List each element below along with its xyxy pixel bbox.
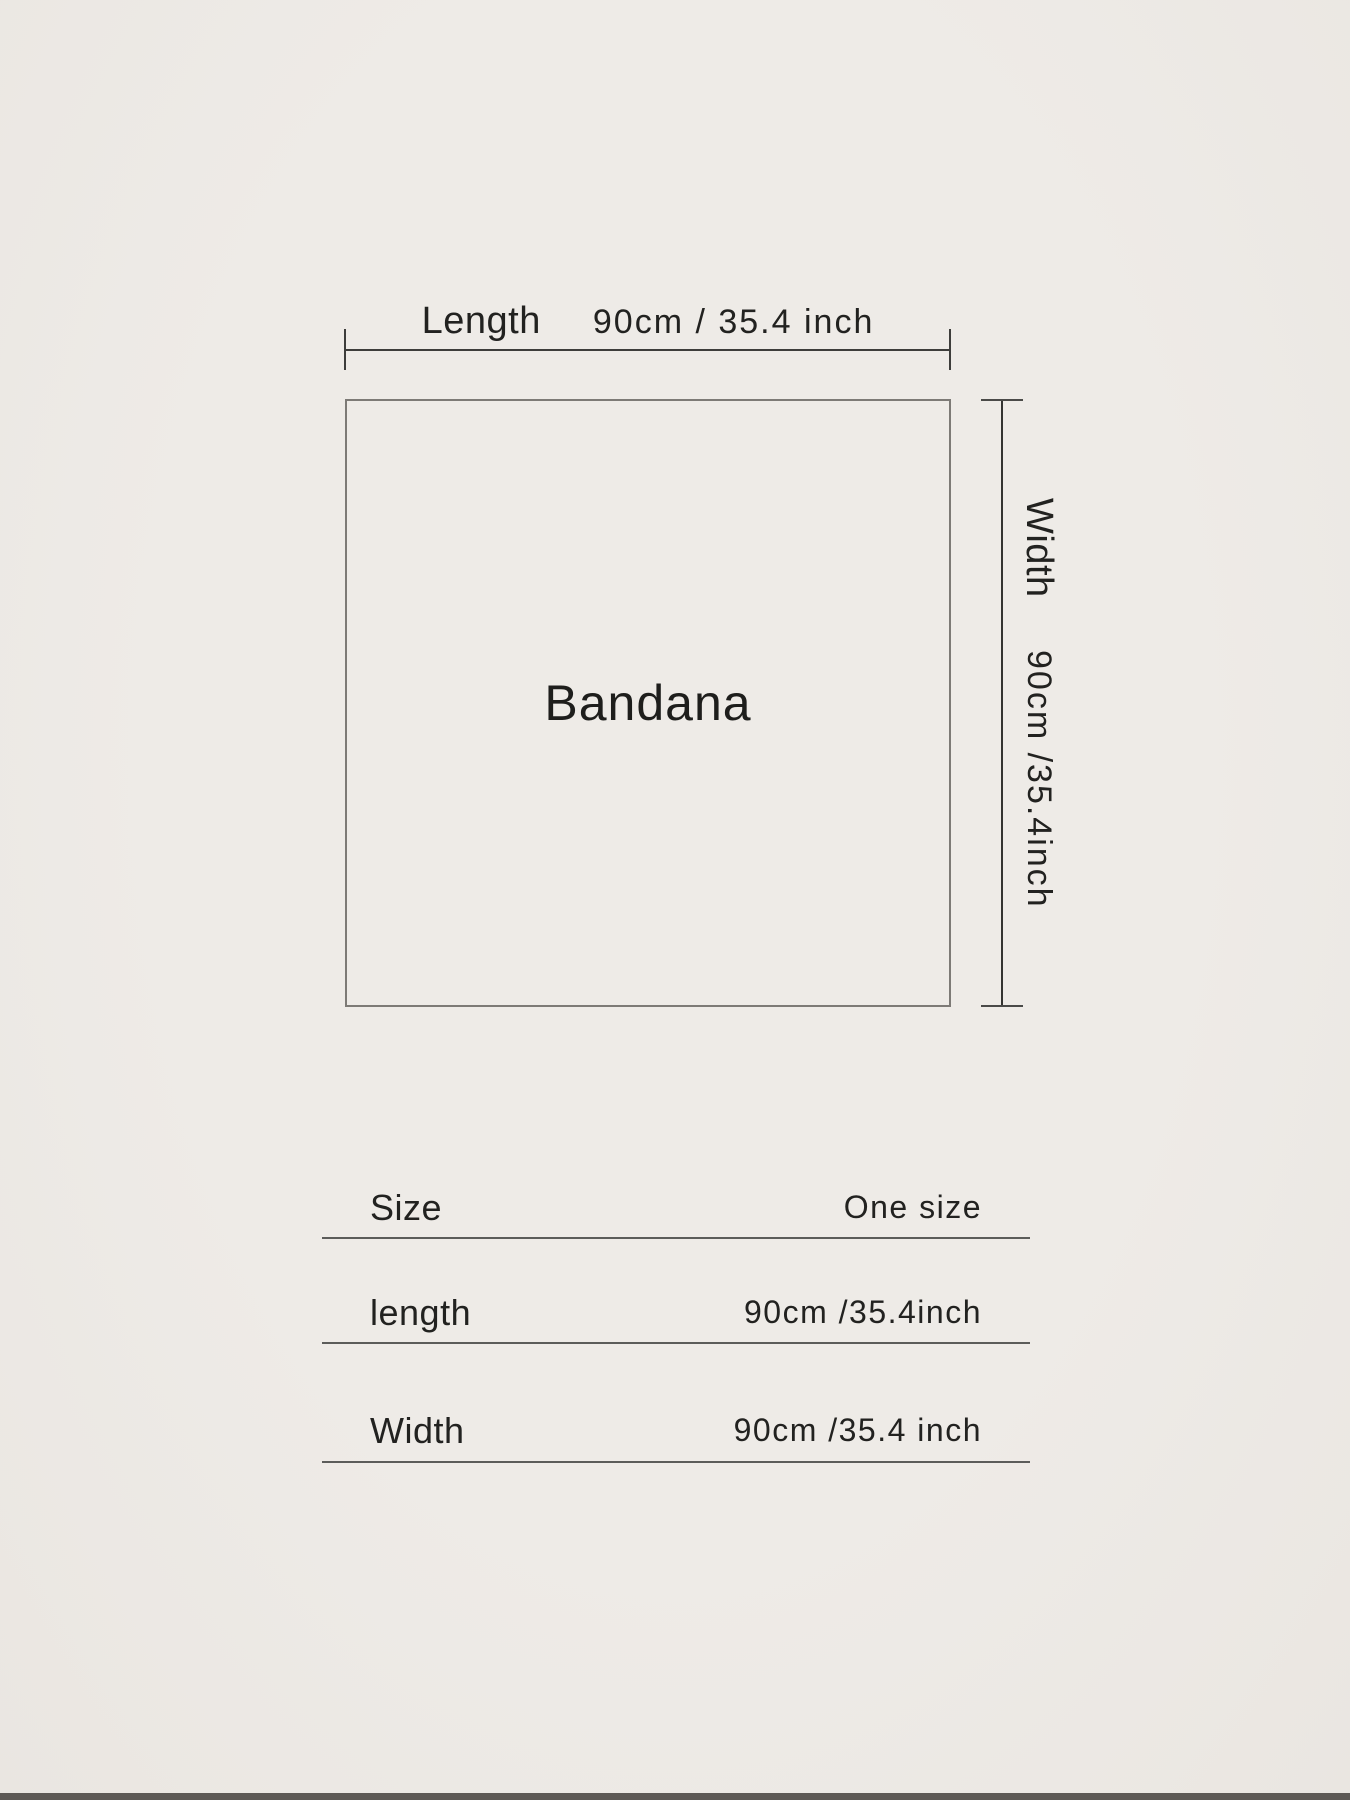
product-label: Bandana bbox=[544, 674, 751, 732]
width-label: Width bbox=[1020, 498, 1058, 598]
length-dimension-line bbox=[345, 349, 951, 351]
length-dimension-tick-left bbox=[344, 329, 346, 370]
length-label: Length bbox=[422, 302, 541, 340]
bandana-outline: Bandana bbox=[345, 399, 951, 1007]
length-dimension-tick-right bbox=[949, 329, 951, 370]
width-value: 90cm /35.4inch bbox=[1022, 650, 1056, 909]
table-row-length-label: length bbox=[370, 1292, 471, 1334]
size-chart-image: Length 90cm / 35.4 inch Bandana Width 90… bbox=[0, 0, 1350, 1800]
table-row-size-value: One size bbox=[844, 1189, 982, 1226]
width-dimension-line bbox=[1001, 399, 1003, 1007]
table-row-width-label: Width bbox=[370, 1410, 465, 1452]
length-dimension-caption: Length 90cm / 35.4 inch bbox=[345, 302, 951, 348]
table-row-width-value: 90cm /35.4 inch bbox=[734, 1412, 982, 1449]
table-row-length: length 90cm /35.4inch bbox=[322, 1283, 1030, 1344]
table-row-size-label: Size bbox=[370, 1187, 442, 1229]
table-row-width: Width 90cm /35.4 inch bbox=[322, 1400, 1030, 1463]
table-row-size: Size One size bbox=[322, 1178, 1030, 1239]
width-dimension-caption: Width 90cm /35.4inch bbox=[1012, 399, 1066, 1007]
table-row-length-value: 90cm /35.4inch bbox=[744, 1294, 982, 1331]
length-value: 90cm / 35.4 inch bbox=[593, 305, 874, 339]
bottom-edge-strip bbox=[0, 1793, 1350, 1800]
